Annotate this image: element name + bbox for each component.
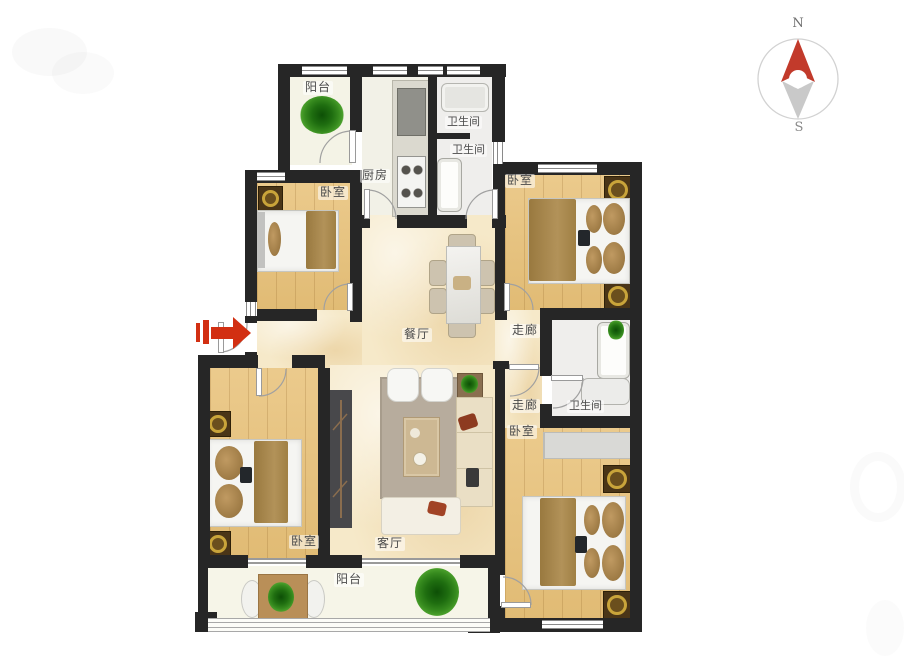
compass-north-label: N — [790, 16, 806, 31]
door-leaf — [347, 283, 353, 311]
entrance-arrow-head — [233, 317, 251, 349]
door-leaf — [256, 368, 262, 396]
floor-plan: 阳台 厨房 卫生间 卫生间 卧室 卧室 餐厅 走廊 走廊 卫生间 卧室 卧室 客… — [0, 0, 904, 666]
door-leaf — [509, 364, 539, 370]
door-leaf — [364, 189, 370, 219]
room-label-bath-mid: 卫生间 — [450, 144, 487, 157]
room-label-bedroom-se: 卧室 — [507, 425, 537, 439]
room-label-dining: 餐厅 — [402, 328, 432, 342]
door-leaf — [349, 130, 356, 163]
door-leaf — [492, 189, 498, 219]
room-label-corridor-lower: 走廊 — [510, 399, 540, 413]
room-label-balcony-top: 阳台 — [303, 81, 333, 95]
room-label-corridor-upper: 走廊 — [510, 324, 540, 338]
room-label-bedroom-nw: 卧室 — [318, 186, 348, 200]
room-label-bedroom-ne: 卧室 — [505, 174, 535, 188]
room-label-kitchen: 厨房 — [360, 169, 390, 183]
room-label-bath-right: 卫生间 — [567, 400, 604, 413]
entrance-arrow — [196, 323, 200, 342]
room-label-bedroom-sw: 卧室 — [289, 535, 319, 549]
compass-south-label: S — [791, 120, 807, 135]
door-leaf — [551, 375, 583, 381]
room-label-bath-top: 卫生间 — [445, 116, 482, 129]
room-label-living: 客厅 — [375, 537, 405, 551]
room-label-balcony-bottom: 阳台 — [334, 573, 364, 587]
entrance-arrow — [203, 320, 209, 344]
entrance-arrow — [211, 327, 233, 339]
door-leaf — [504, 283, 510, 311]
door-leaf — [501, 602, 531, 608]
